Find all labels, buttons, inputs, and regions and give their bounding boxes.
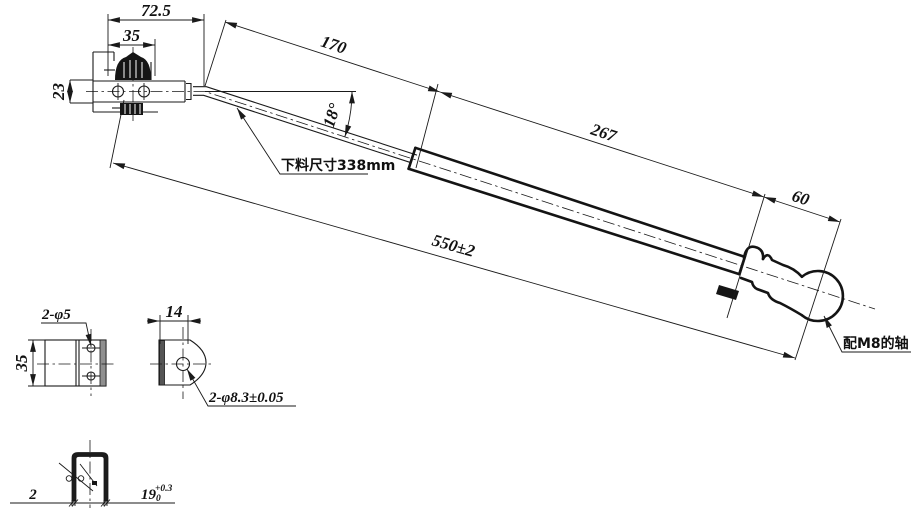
paddle-head <box>802 271 843 321</box>
rod-section <box>193 87 417 163</box>
wiper-arm-drawing: 72.5 35 23 170 18° 267 60 <box>0 0 914 514</box>
blank-size-note: 下料尺寸338mm <box>281 157 395 174</box>
bracket-side-view: 35 2-φ5 <box>12 307 114 396</box>
channel-section-view: 2 19 +0.3 0 <box>10 440 175 508</box>
dim-35-top: 35 <box>122 26 141 45</box>
weld-mark <box>92 481 97 485</box>
plate-outline <box>159 340 206 385</box>
arm-centerline <box>86 92 875 310</box>
weld-symbol-circle-2 <box>78 476 84 482</box>
dim-angle-18: 18° <box>319 101 344 130</box>
dim-550: 550±2 <box>430 231 477 261</box>
dim-14: 14 <box>166 302 183 321</box>
hook-end <box>716 247 843 321</box>
dim-19-tol-lower: 0 <box>156 494 161 504</box>
weld-symbol-lines <box>59 463 97 491</box>
dim-60: 60 <box>790 186 813 209</box>
hatched-edge <box>160 341 165 386</box>
dim-35-side: 35 <box>12 354 31 373</box>
dim-72-5: 72.5 <box>141 1 171 20</box>
dim-267: 267 <box>588 119 621 146</box>
bent-flange-edge <box>100 340 106 386</box>
bracket-end-view: 14 2-φ8.3±0.05 <box>147 302 296 406</box>
dim-2: 2 <box>28 487 37 503</box>
shaft-note: 配M8的轴 <box>843 335 909 352</box>
weld-symbol-circle-1 <box>66 476 72 482</box>
dim-19-tol-upper: +0.3 <box>155 484 173 494</box>
clip-detail <box>716 285 739 300</box>
callout-2-phi8-3: 2-φ8.3±0.05 <box>208 390 284 406</box>
callout-2-phi5: 2-φ5 <box>41 307 71 323</box>
technical-drawing-page: 72.5 35 23 170 18° 267 60 <box>0 0 914 514</box>
dim-23: 23 <box>49 83 68 102</box>
